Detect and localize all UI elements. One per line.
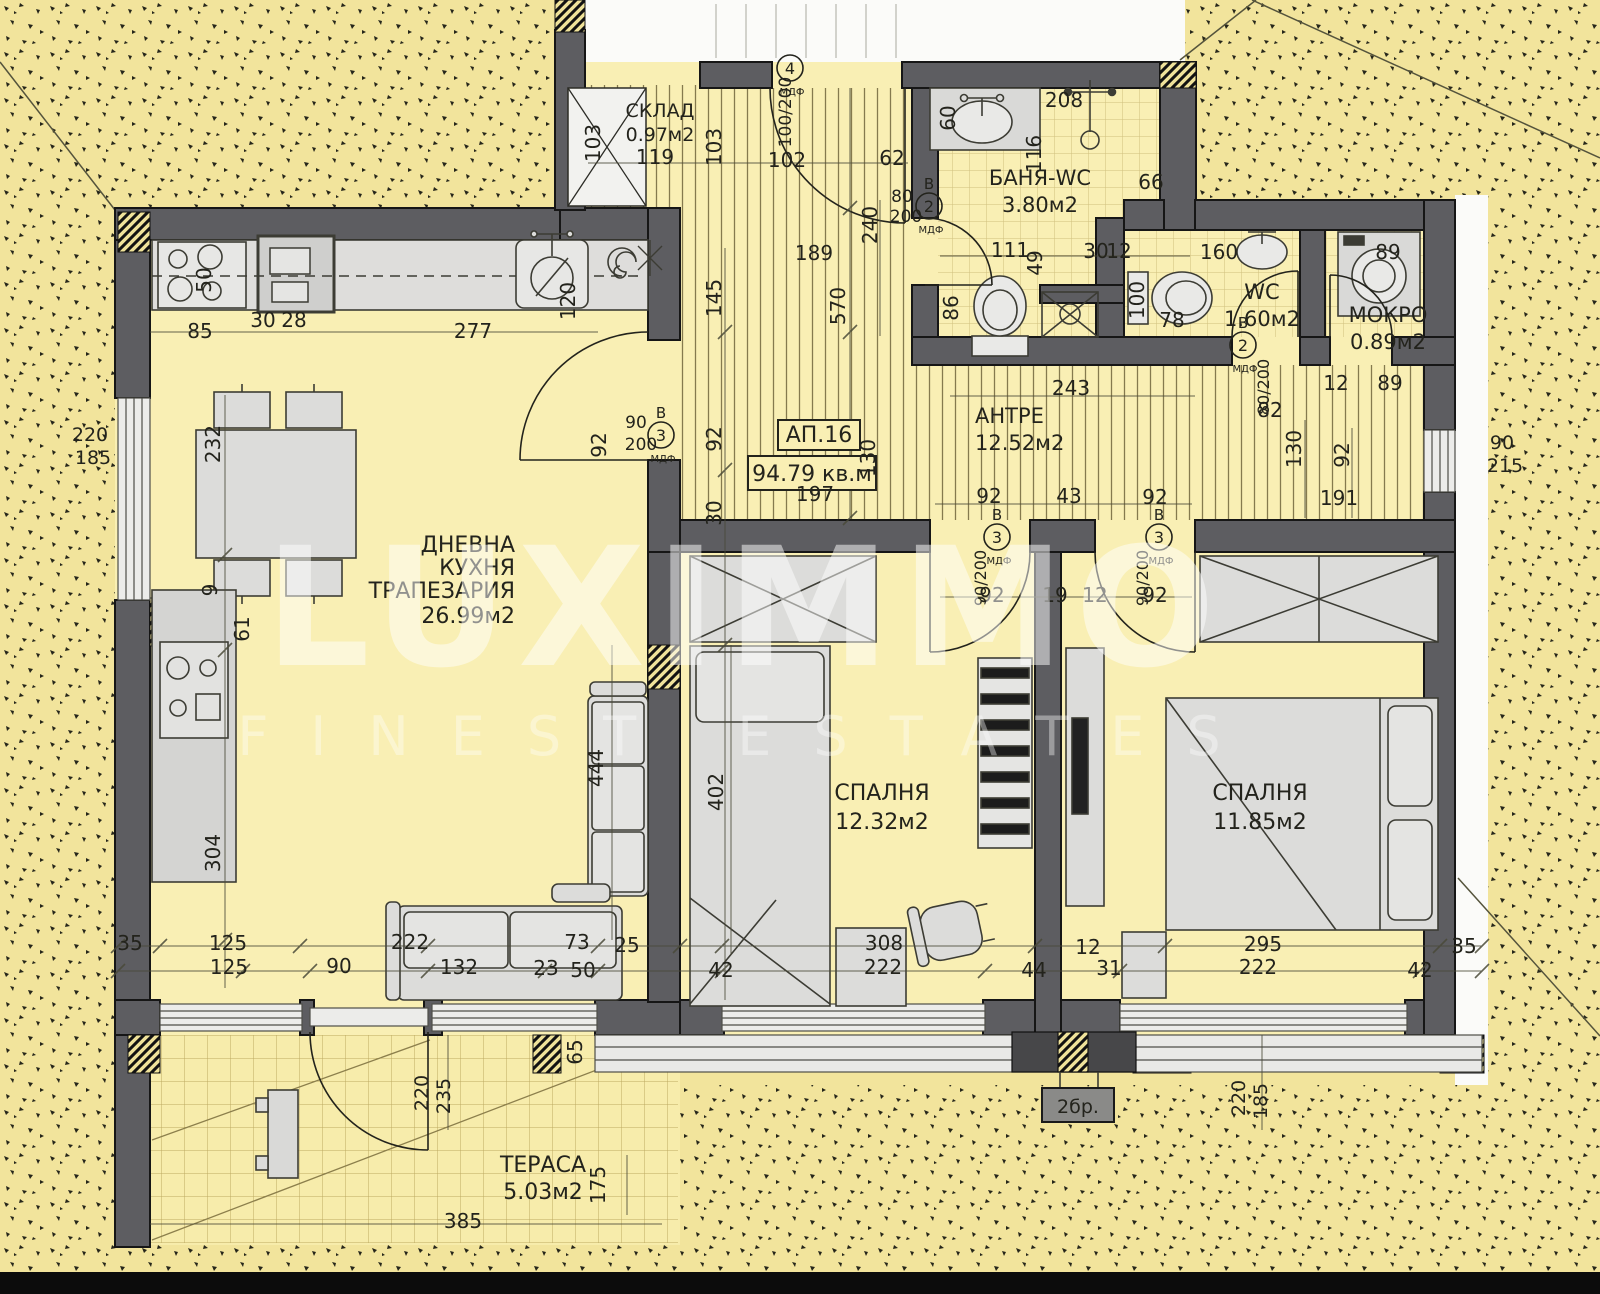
dimension-label: 220 [72, 424, 108, 446]
dimension-label: 62 [879, 146, 904, 170]
door-tag-number: 2 [1238, 336, 1248, 355]
dimension-label: 295 [1244, 932, 1282, 956]
dimension-label: 9 [198, 584, 222, 597]
room-name: СПАЛНЯ [834, 781, 929, 806]
dimension-label: 103 [581, 124, 605, 162]
room-name: СПАЛНЯ [1212, 781, 1307, 806]
room-name: МОКРО [1349, 303, 1428, 327]
dimension-label: 308 [865, 931, 903, 955]
dimension-label: 30 [250, 308, 275, 332]
dimension-label: 222 [864, 955, 902, 979]
dimension-label: 25 [614, 933, 639, 957]
dimension-label: 28 [281, 308, 306, 332]
room-name: СКЛАД [626, 100, 695, 122]
dimension-label: 23 [533, 956, 558, 980]
apartment-number: АП.16 [786, 423, 853, 448]
dimension-label: 304 [201, 834, 225, 872]
dimension-label: 50 [570, 958, 595, 982]
dimension-label: 31 [1096, 956, 1121, 980]
dimension-label: 44 [1021, 958, 1046, 982]
dimension-label: 90 [625, 413, 647, 433]
dimension-label: 103 [702, 128, 726, 166]
dimension-label: 66 [1138, 170, 1163, 194]
dimension-label: 130 [1282, 430, 1306, 468]
dimension-label: 92 [976, 484, 1001, 508]
room-area: 3.80м2 [1002, 193, 1078, 217]
bottom-bar [0, 1272, 1600, 1294]
door-tag-number: 2 [924, 197, 934, 216]
fridge-icon [258, 236, 334, 312]
dimension-label: 235 [433, 1078, 455, 1114]
door-tag-material: МДФ [918, 225, 943, 236]
dimension-label: 73 [564, 930, 589, 954]
watermark: LUXIMMO FINEST ESTATES [237, 512, 1262, 768]
dimension-label: 175 [586, 1166, 610, 1204]
room-area: 12.32м2 [835, 810, 929, 835]
dimension-label: 185 [1250, 1083, 1272, 1119]
dimension-label: 85 [187, 319, 212, 343]
dimension-label: 89 [1377, 371, 1402, 395]
dimension-label: 80 [891, 187, 913, 207]
door-tag-material: МДФ [650, 454, 675, 465]
door-tag-letter: В [1238, 314, 1248, 332]
dimension-label: 92 [587, 432, 611, 457]
dimension-label: 132 [440, 955, 478, 979]
room-name: АНТРЕ [975, 404, 1044, 428]
dimension-label: 125 [209, 931, 247, 955]
nightstand-2 [1122, 932, 1166, 998]
room-name: БАНЯ-WC [989, 166, 1091, 190]
dimension-label: 90 [326, 954, 351, 978]
room-name: ТЕРАСА [499, 1153, 586, 1178]
door-tag-material: МДФ [1232, 364, 1257, 375]
door-tag-material: МДФ [779, 87, 804, 98]
dimension-label: 185 [75, 447, 111, 469]
dimension-label: 49 [1023, 250, 1047, 275]
dimension-label: 50 [192, 267, 216, 292]
dimension-label: 125 [210, 955, 248, 979]
dimension-label: 35 [1451, 934, 1476, 958]
dimension-label: 92 [702, 426, 726, 451]
dimension-label: 78 [1159, 308, 1184, 332]
dimension-label: 130 [856, 439, 880, 477]
dimension-label: 42 [1407, 958, 1432, 982]
dimension-label: 90 [1490, 432, 1514, 454]
dimension-label: 197 [796, 482, 834, 506]
dimension-label: 240 [858, 206, 882, 244]
dimension-label: 220 [411, 1075, 433, 1111]
dimension-label: 119 [636, 145, 674, 169]
floor-plan-screenshot: АП.16 94.79 кв.м 85302827750120103119103… [0, 0, 1600, 1294]
dimension-label: 61 [230, 616, 254, 641]
door-tag-number: 3 [656, 426, 666, 445]
dimension-label: 102 [768, 148, 806, 172]
dimension-label: 120 [556, 282, 580, 320]
dimension-label: 145 [702, 279, 726, 317]
dimension-label: 92 [1330, 442, 1354, 467]
dimension-label: 222 [1239, 955, 1277, 979]
dimension-label: 12 [1323, 371, 1348, 395]
dimension-label: 43 [1056, 484, 1081, 508]
room-area: 11.85м2 [1213, 810, 1307, 835]
watermark-brand: LUXIMMO [265, 512, 1226, 704]
dimension-label: 60 [936, 105, 960, 130]
dimension-label: 89 [1375, 240, 1400, 264]
room-name: WC [1244, 280, 1279, 304]
terrace-door-leaf [310, 1008, 428, 1026]
dimension-label: 208 [1045, 88, 1083, 112]
toilet-bath [972, 276, 1028, 356]
dimension-label: 191 [1320, 486, 1358, 510]
door-tag-letter: В [924, 175, 934, 193]
dimension-label: 35 [117, 931, 142, 955]
dimension-label: 570 [826, 287, 850, 325]
dimension-label: 12 [1106, 239, 1131, 263]
dimension-label: 42 [708, 958, 733, 982]
dimension-label: 30 [1083, 239, 1108, 263]
dimension-label: 402 [704, 773, 728, 811]
dimension-label: 222 [391, 930, 429, 954]
room-area: 1.60м2 [1224, 307, 1300, 331]
dimension-label: 189 [795, 241, 833, 265]
extra-label: 2бр. [1057, 1096, 1099, 1118]
dimension-label: 65 [563, 1039, 587, 1064]
floorplan-svg: АП.16 94.79 кв.м 85302827750120103119103… [0, 0, 1600, 1294]
dimension-label: 160 [1200, 240, 1238, 264]
door-tag-letter: В [656, 404, 666, 422]
dimension-label: 220 [1228, 1080, 1250, 1116]
room-area: 5.03м2 [503, 1180, 583, 1205]
room-area: 12.52м2 [975, 431, 1064, 455]
room-area: 0.89м2 [1350, 330, 1426, 354]
side-table [552, 884, 610, 902]
dimension-label: 232 [201, 425, 225, 463]
dimension-label: 385 [444, 1209, 482, 1233]
door-tag-number: 4 [785, 59, 795, 78]
dimension-label: 277 [454, 319, 492, 343]
dimension-label: 215 [1487, 455, 1523, 477]
dimension-label: 243 [1052, 376, 1090, 400]
dimension-label: 86 [939, 295, 963, 320]
room-area: 0.97м2 [626, 124, 695, 146]
dimension-label: 100 [1125, 281, 1149, 319]
watermark-tagline: FINEST ESTATES [237, 705, 1262, 768]
